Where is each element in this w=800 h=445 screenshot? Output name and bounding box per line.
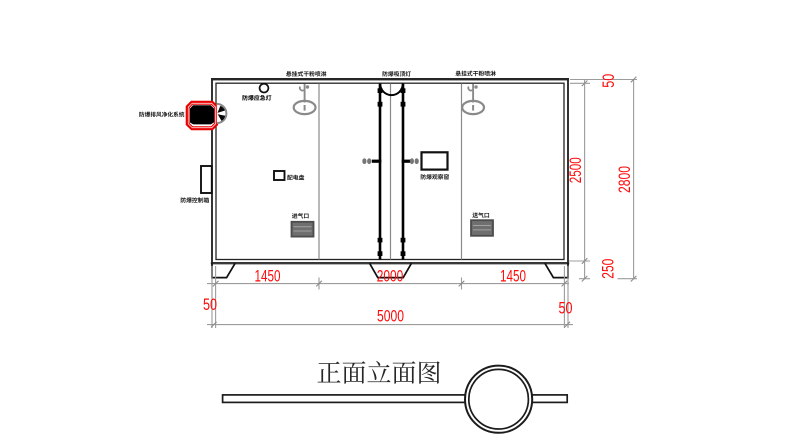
svg-text:50: 50 <box>600 74 618 88</box>
svg-text:2000: 2000 <box>377 268 404 286</box>
svg-text:1450: 1450 <box>500 267 526 285</box>
svg-text:50: 50 <box>559 299 573 317</box>
svg-text:2500: 2500 <box>567 157 585 183</box>
svg-text:5000: 5000 <box>377 308 404 326</box>
svg-text:50: 50 <box>203 296 217 314</box>
svg-text:250: 250 <box>600 259 618 279</box>
svg-text:2800: 2800 <box>616 166 634 193</box>
svg-text:1450: 1450 <box>255 267 281 285</box>
